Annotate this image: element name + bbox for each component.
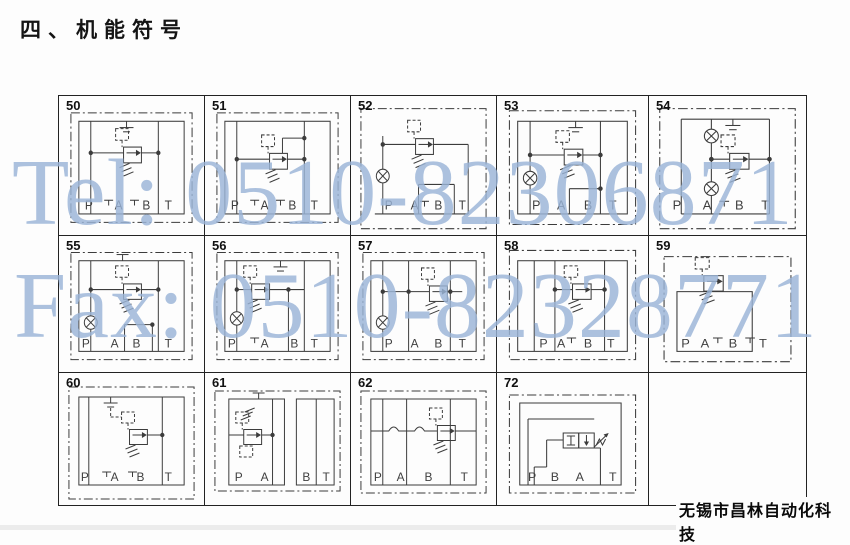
svg-text:T: T	[165, 470, 173, 484]
svg-text:A: A	[397, 470, 405, 484]
svg-text:B: B	[136, 470, 144, 484]
cell-number: 61	[212, 375, 226, 390]
svg-text:A: A	[701, 337, 710, 351]
svg-text:P: P	[385, 336, 393, 350]
svg-text:B: B	[434, 198, 442, 212]
svg-text:B: B	[288, 198, 296, 212]
company-name: 无锡市昌林自动化科技	[676, 497, 850, 545]
cell-number: 62	[358, 375, 372, 390]
hydraulic-symbol-62: PABT	[351, 373, 496, 505]
cell-number: 57	[358, 238, 372, 253]
hydraulic-symbol-57: PABT	[351, 236, 496, 372]
svg-text:P: P	[235, 470, 243, 484]
svg-text:B: B	[434, 336, 442, 350]
svg-text:P: P	[228, 336, 236, 350]
svg-text:T: T	[609, 470, 617, 484]
svg-text:B: B	[132, 336, 140, 350]
svg-text:A: A	[411, 336, 420, 350]
hydraulic-symbol-53: PABT	[497, 96, 648, 235]
svg-text:A: A	[576, 470, 585, 484]
cell-number: 72	[504, 375, 518, 390]
symbol-cell-56: 56PABT	[204, 235, 350, 372]
document-page: 四、机能符号 50PABT51PABT52PABT53PABT54PABT55P…	[0, 0, 850, 530]
empty-cell	[648, 372, 806, 505]
svg-text:T: T	[459, 198, 467, 212]
svg-text:B: B	[729, 337, 738, 351]
cell-number: 51	[212, 98, 226, 113]
svg-text:P: P	[231, 198, 239, 212]
svg-text:B: B	[584, 199, 592, 213]
svg-text:A: A	[703, 198, 712, 213]
hydraulic-symbol-54: PABT	[649, 96, 806, 235]
svg-text:P: P	[374, 470, 382, 484]
svg-text:A: A	[411, 198, 420, 212]
hydraulic-symbol-61: PABT	[205, 373, 350, 505]
cell-number: 59	[656, 238, 670, 253]
svg-text:P: P	[681, 337, 690, 351]
svg-text:T: T	[165, 198, 173, 212]
svg-text:B: B	[142, 198, 150, 212]
symbol-cell-58: 58PABT	[496, 235, 648, 372]
svg-text:P: P	[673, 198, 682, 213]
svg-text:B: B	[302, 470, 310, 484]
symbol-cell-62: 62PABT	[350, 372, 496, 505]
hydraulic-symbol-51: PABT	[205, 96, 350, 235]
svg-text:T: T	[607, 336, 615, 350]
svg-text:T: T	[311, 198, 319, 212]
svg-text:A: A	[557, 199, 566, 213]
symbol-cell-52: 52PABT	[350, 95, 496, 235]
svg-text:P: P	[81, 470, 89, 484]
svg-text:B: B	[584, 336, 592, 350]
hydraulic-symbol-52: PABT	[351, 96, 496, 235]
svg-text:T: T	[609, 199, 617, 213]
svg-text:P: P	[528, 470, 536, 484]
hydraulic-symbol-55: PABT	[59, 236, 204, 372]
svg-text:T: T	[761, 198, 769, 213]
hydraulic-symbol-56: PABT	[205, 236, 350, 372]
svg-text:T: T	[461, 470, 469, 484]
symbol-cell-54: 54PABT	[648, 95, 806, 235]
svg-text:A: A	[261, 198, 270, 212]
svg-text:P: P	[385, 198, 393, 212]
symbol-cell-57: 57PABT	[350, 235, 496, 372]
svg-text:P: P	[82, 336, 90, 350]
svg-text:B: B	[735, 198, 744, 213]
svg-text:A: A	[557, 336, 566, 350]
symbol-cell-59: 59PABT	[648, 235, 806, 372]
svg-text:B: B	[424, 470, 432, 484]
cell-number: 56	[212, 238, 226, 253]
cell-number: 58	[504, 238, 518, 253]
svg-text:T: T	[311, 336, 319, 350]
svg-text:T: T	[759, 337, 767, 351]
svg-text:A: A	[261, 470, 269, 484]
cell-number: 55	[66, 238, 80, 253]
svg-text:P: P	[85, 198, 93, 212]
cell-number: 54	[656, 98, 670, 113]
hydraulic-symbol-59: PABT	[649, 236, 806, 372]
hydraulic-symbol-72: PBAT	[497, 373, 648, 505]
cell-number: 60	[66, 375, 80, 390]
svg-text:T: T	[323, 470, 331, 484]
hydraulic-symbol-58: PABT	[497, 236, 648, 372]
symbol-cell-51: 51PABT	[204, 95, 350, 235]
svg-text:A: A	[261, 336, 270, 350]
hydraulic-symbol-50: PABT	[59, 96, 204, 235]
svg-text:B: B	[290, 336, 298, 350]
svg-text:A: A	[111, 470, 119, 484]
cell-number: 52	[358, 98, 372, 113]
page-title: 四、机能符号	[20, 14, 188, 44]
symbol-cell-55: 55PABT	[58, 235, 204, 372]
symbol-cell-61: 61PABT	[204, 372, 350, 505]
symbol-cell-53: 53PABT	[496, 95, 648, 235]
svg-text:T: T	[459, 336, 467, 350]
cell-number: 50	[66, 98, 80, 113]
svg-text:T: T	[165, 336, 173, 350]
svg-text:P: P	[532, 199, 540, 213]
svg-text:A: A	[111, 336, 120, 350]
symbol-cell-50: 50PABT	[58, 95, 204, 235]
cell-number: 53	[504, 98, 518, 113]
symbol-cell-60: 60PABT	[58, 372, 204, 505]
svg-text:B: B	[551, 470, 559, 484]
svg-text:A: A	[115, 198, 124, 212]
hydraulic-symbol-60: PABT	[59, 373, 204, 505]
symbol-cell-72: 72PBAT	[496, 372, 648, 505]
svg-text:P: P	[539, 336, 547, 350]
symbol-table: 50PABT51PABT52PABT53PABT54PABT55PABT56PA…	[58, 95, 807, 506]
